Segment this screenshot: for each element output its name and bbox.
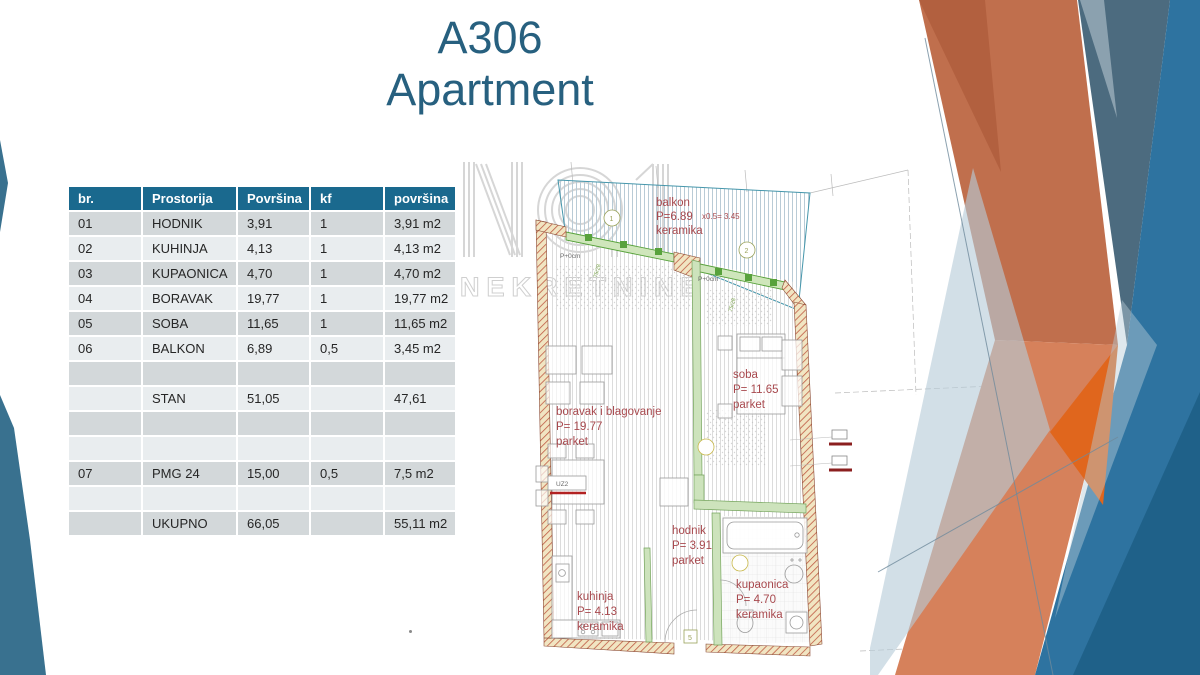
- table-cell: [238, 487, 309, 510]
- table-cell: 0,5: [311, 337, 383, 360]
- table-cell: UKUPNO: [143, 512, 236, 535]
- svg-text:P= 4.70: P= 4.70: [736, 594, 776, 606]
- table-cell: PMG 24: [143, 462, 236, 485]
- table-cell: HODNIK: [143, 212, 236, 235]
- table-row: 06BALKON6,890,53,45 m2: [69, 337, 455, 360]
- title-line-1: A306: [295, 12, 685, 64]
- table-cell: 4,13 m2: [385, 237, 455, 260]
- svg-text:P= 19.77: P= 19.77: [556, 421, 602, 433]
- table-cell: 4,70 m2: [385, 262, 455, 285]
- table-cell: [311, 512, 383, 535]
- uz-label: UZ2: [556, 481, 569, 488]
- svg-text:P= 3.91: P= 3.91: [672, 540, 712, 552]
- door-tag: 5: [688, 635, 692, 642]
- table-row: [69, 487, 455, 510]
- table-cell: 47,61: [385, 387, 455, 410]
- table-row: STAN51,0547,61: [69, 387, 455, 410]
- table-cell: [238, 362, 309, 385]
- table-cell: 4,70: [238, 262, 309, 285]
- table-cell: 15,00: [238, 462, 309, 485]
- table-cell: [69, 387, 141, 410]
- table-cell: 3,45 m2: [385, 337, 455, 360]
- table-cell: 55,11 m2: [385, 512, 455, 535]
- table-cell: 1: [311, 237, 383, 260]
- table-row: 01HODNIK3,9113,91 m2: [69, 212, 455, 235]
- right-decoration: [870, 0, 1200, 675]
- table-row: 03KUPAONICA4,7014,70 m2: [69, 262, 455, 285]
- table-cell: [311, 362, 383, 385]
- svg-text:x0.5= 3.45: x0.5= 3.45: [702, 212, 740, 221]
- table-cell: 1: [311, 312, 383, 335]
- wardrobe-icon: [782, 340, 802, 370]
- table-cell: [311, 487, 383, 510]
- svg-text:kuhinja: kuhinja: [577, 591, 614, 603]
- svg-text:boravak i blagovanje: boravak i blagovanje: [556, 406, 662, 418]
- table-cell: 11,65 m2: [385, 312, 455, 335]
- svg-text:P=6.89: P=6.89: [656, 211, 693, 223]
- table-cell: 03: [69, 262, 141, 285]
- table-cell: [69, 362, 141, 385]
- svg-text:2: 2: [745, 248, 749, 255]
- table-cell: 19,77: [238, 287, 309, 310]
- svg-text:P= 4.13: P= 4.13: [577, 606, 617, 618]
- table-cell: KUPAONICA: [143, 262, 236, 285]
- svg-text:P= 11.65: P= 11.65: [733, 384, 779, 396]
- column-header: Površina: [238, 187, 309, 210]
- table-row: 02KUHINJA4,1314,13 m2: [69, 237, 455, 260]
- table-cell: [143, 362, 236, 385]
- table-cell: [385, 487, 455, 510]
- table-cell: 1: [311, 212, 383, 235]
- svg-text:1: 1: [610, 216, 614, 223]
- table-cell: [238, 412, 309, 435]
- table-cell: [143, 487, 236, 510]
- table-cell: [69, 437, 141, 460]
- table-cell: SOBA: [143, 312, 236, 335]
- table-cell: [311, 387, 383, 410]
- table-cell: [69, 412, 141, 435]
- svg-text:kupaonica: kupaonica: [736, 579, 789, 591]
- table-body: 01HODNIK3,9113,91 m202KUHINJA4,1314,13 m…: [69, 212, 455, 535]
- table-head: br.ProstorijaPovršinakfpovršina: [69, 187, 455, 210]
- left-top-sliver: [0, 140, 8, 232]
- stray-dot: [409, 630, 412, 633]
- table-row: [69, 437, 455, 460]
- table-row: UKUPNO66,0555,11 m2: [69, 512, 455, 535]
- table-row: [69, 362, 455, 385]
- table-cell: [69, 512, 141, 535]
- washing-machine-icon: [786, 612, 807, 633]
- column-header: Prostorija: [143, 187, 236, 210]
- table-cell: BALKON: [143, 337, 236, 360]
- left-bottom-wedge: [0, 395, 46, 675]
- table-cell: 07: [69, 462, 141, 485]
- table-cell: [311, 437, 383, 460]
- table-cell: [311, 412, 383, 435]
- page-title: A306 Apartment: [295, 12, 685, 116]
- table-cell: [69, 487, 141, 510]
- table-cell: 51,05: [238, 387, 309, 410]
- title-line-2: Apartment: [295, 64, 685, 116]
- table-cell: 4,13: [238, 237, 309, 260]
- bathtub-icon: [723, 518, 807, 553]
- table-cell: [385, 437, 455, 460]
- table-cell: STAN: [143, 387, 236, 410]
- svg-text:parket: parket: [556, 436, 589, 448]
- level-note-left: P+0cm: [560, 253, 580, 260]
- table-cell: 0,5: [311, 462, 383, 485]
- svg-text:keramika: keramika: [656, 225, 703, 237]
- table-cell: [385, 412, 455, 435]
- table-row: 05SOBA11,65111,65 m2: [69, 312, 455, 335]
- column-header: br.: [69, 187, 141, 210]
- column-header: kf: [311, 187, 383, 210]
- table-cell: KUHINJA: [143, 237, 236, 260]
- table-row: [69, 412, 455, 435]
- table-cell: [238, 437, 309, 460]
- table-cell: 05: [69, 312, 141, 335]
- svg-text:keramika: keramika: [577, 621, 624, 633]
- level-note-right: P+0cm: [698, 276, 718, 283]
- table-cell: 19,77 m2: [385, 287, 455, 310]
- table-cell: 66,05: [238, 512, 309, 535]
- table-cell: 1: [311, 287, 383, 310]
- svg-text:keramika: keramika: [736, 609, 783, 621]
- table-cell: [143, 437, 236, 460]
- table-cell: 7,5 m2: [385, 462, 455, 485]
- left-decoration: [0, 0, 60, 675]
- table-cell: 3,91 m2: [385, 212, 455, 235]
- table-cell: 01: [69, 212, 141, 235]
- table-cell: [143, 412, 236, 435]
- table-row: 07PMG 2415,000,57,5 m2: [69, 462, 455, 485]
- table-cell: [385, 362, 455, 385]
- table-header-row: br.ProstorijaPovršinakfpovršina: [69, 187, 455, 210]
- table-cell: 3,91: [238, 212, 309, 235]
- table-cell: 11,65: [238, 312, 309, 335]
- table-row: 04BORAVAK19,77119,77 m2: [69, 287, 455, 310]
- table-cell: 04: [69, 287, 141, 310]
- svg-text:soba: soba: [733, 369, 759, 381]
- table-cell: 6,89: [238, 337, 309, 360]
- svg-text:parket: parket: [733, 399, 766, 411]
- area-table-container: br.ProstorijaPovršinakfpovršina 01HODNIK…: [67, 185, 445, 537]
- svg-text:hodnik: hodnik: [672, 525, 706, 537]
- table-cell: 06: [69, 337, 141, 360]
- table-cell: 02: [69, 237, 141, 260]
- svg-text:parket: parket: [672, 555, 705, 567]
- table-cell: BORAVAK: [143, 287, 236, 310]
- area-table: br.ProstorijaPovršinakfpovršina 01HODNIK…: [67, 185, 457, 537]
- svg-text:balkon: balkon: [656, 197, 690, 209]
- column-header: površina: [385, 187, 455, 210]
- table-cell: 1: [311, 262, 383, 285]
